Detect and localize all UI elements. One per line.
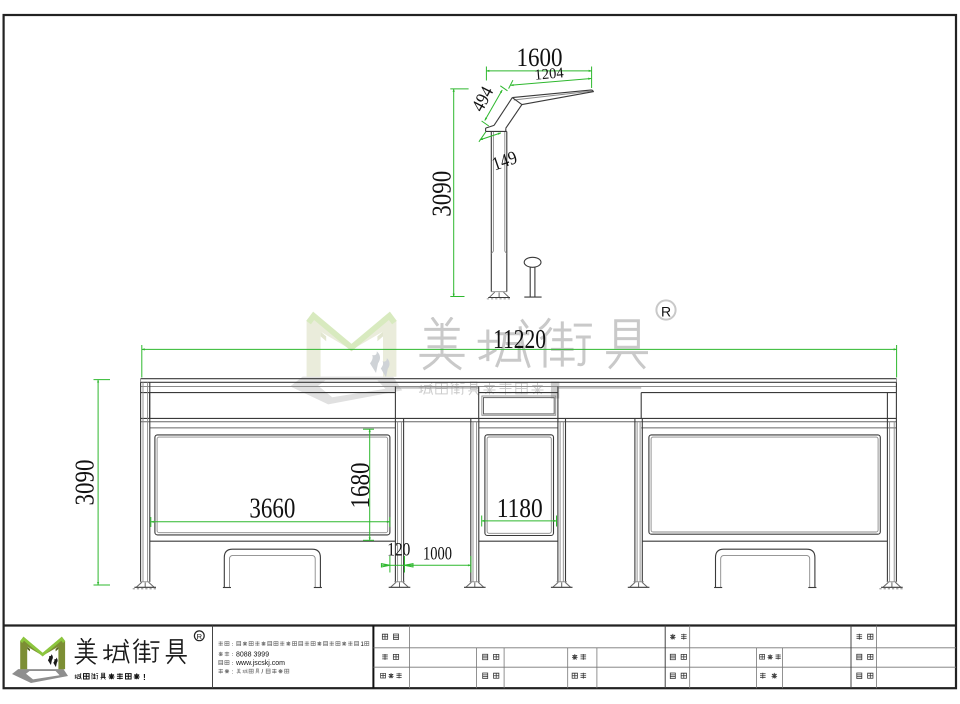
svg-text:3660: 3660 xyxy=(249,494,295,525)
svg-text:8088 3999: 8088 3999 xyxy=(236,651,269,658)
svg-text:1204: 1204 xyxy=(534,65,565,84)
svg-text:R: R xyxy=(661,304,671,320)
svg-text:1680: 1680 xyxy=(345,463,375,509)
svg-text:120: 120 xyxy=(387,539,410,560)
svg-text:www.jscskj.com: www.jscskj.com xyxy=(235,660,285,667)
svg-text:3090: 3090 xyxy=(427,171,457,217)
svg-text:R: R xyxy=(197,632,203,641)
svg-text:3090: 3090 xyxy=(70,460,100,506)
svg-text:1000: 1000 xyxy=(423,544,452,565)
svg-text:!: ! xyxy=(553,382,557,399)
svg-text:!: ! xyxy=(143,672,146,682)
svg-text:1180: 1180 xyxy=(497,493,543,523)
svg-text:11220: 11220 xyxy=(493,324,546,354)
